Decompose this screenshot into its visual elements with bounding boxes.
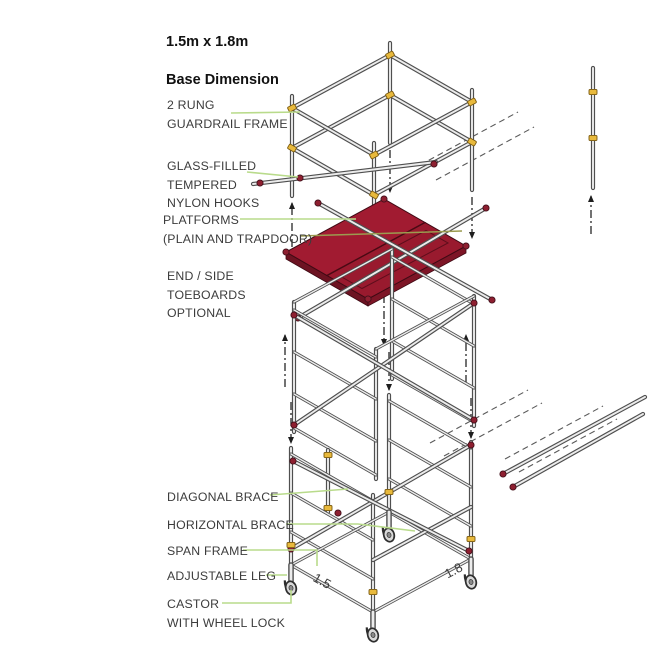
label-horizontal-brace: HORIZONTAL BRACE xyxy=(167,516,294,535)
title-line-1: 1.5m x 1.8m xyxy=(166,33,279,52)
scaffold-diagram-page: 1.5m x 1.8m Base Dimension 2 RUNG GUARDR… xyxy=(0,0,650,650)
label-end-side-toeboards: END / SIDE TOEBOARDS OPTIONAL xyxy=(167,267,246,323)
label-adjustable-leg: ADJUSTABLE LEG xyxy=(167,567,276,586)
scaffold-diagram-graphic xyxy=(0,0,650,650)
detached-guardrail-post xyxy=(589,68,597,188)
base-section-graphic xyxy=(287,395,475,628)
title-line-2: Base Dimension xyxy=(166,71,279,90)
diagram-title: 1.5m x 1.8m Base Dimension xyxy=(166,14,279,109)
castor-graphic xyxy=(464,572,478,590)
label-platforms: PLATFORMS (PLAIN AND TRAPDOOR) xyxy=(163,211,312,248)
castor-graphic xyxy=(366,625,380,643)
label-glass-filled-tempered-nylon-hooks: GLASS-FILLED TEMPERED NYLON HOOKS xyxy=(167,157,259,213)
label-diagonal-brace: DIAGONAL BRACE xyxy=(167,488,279,507)
label-span-frame: SPAN FRAME xyxy=(167,542,248,561)
label-two-rung-guardrail-frame: 2 RUNG GUARDRAIL FRAME xyxy=(167,96,288,133)
dashed-assembly-guides xyxy=(420,112,617,472)
label-castor: CASTOR WITH WHEEL LOCK xyxy=(167,595,285,632)
